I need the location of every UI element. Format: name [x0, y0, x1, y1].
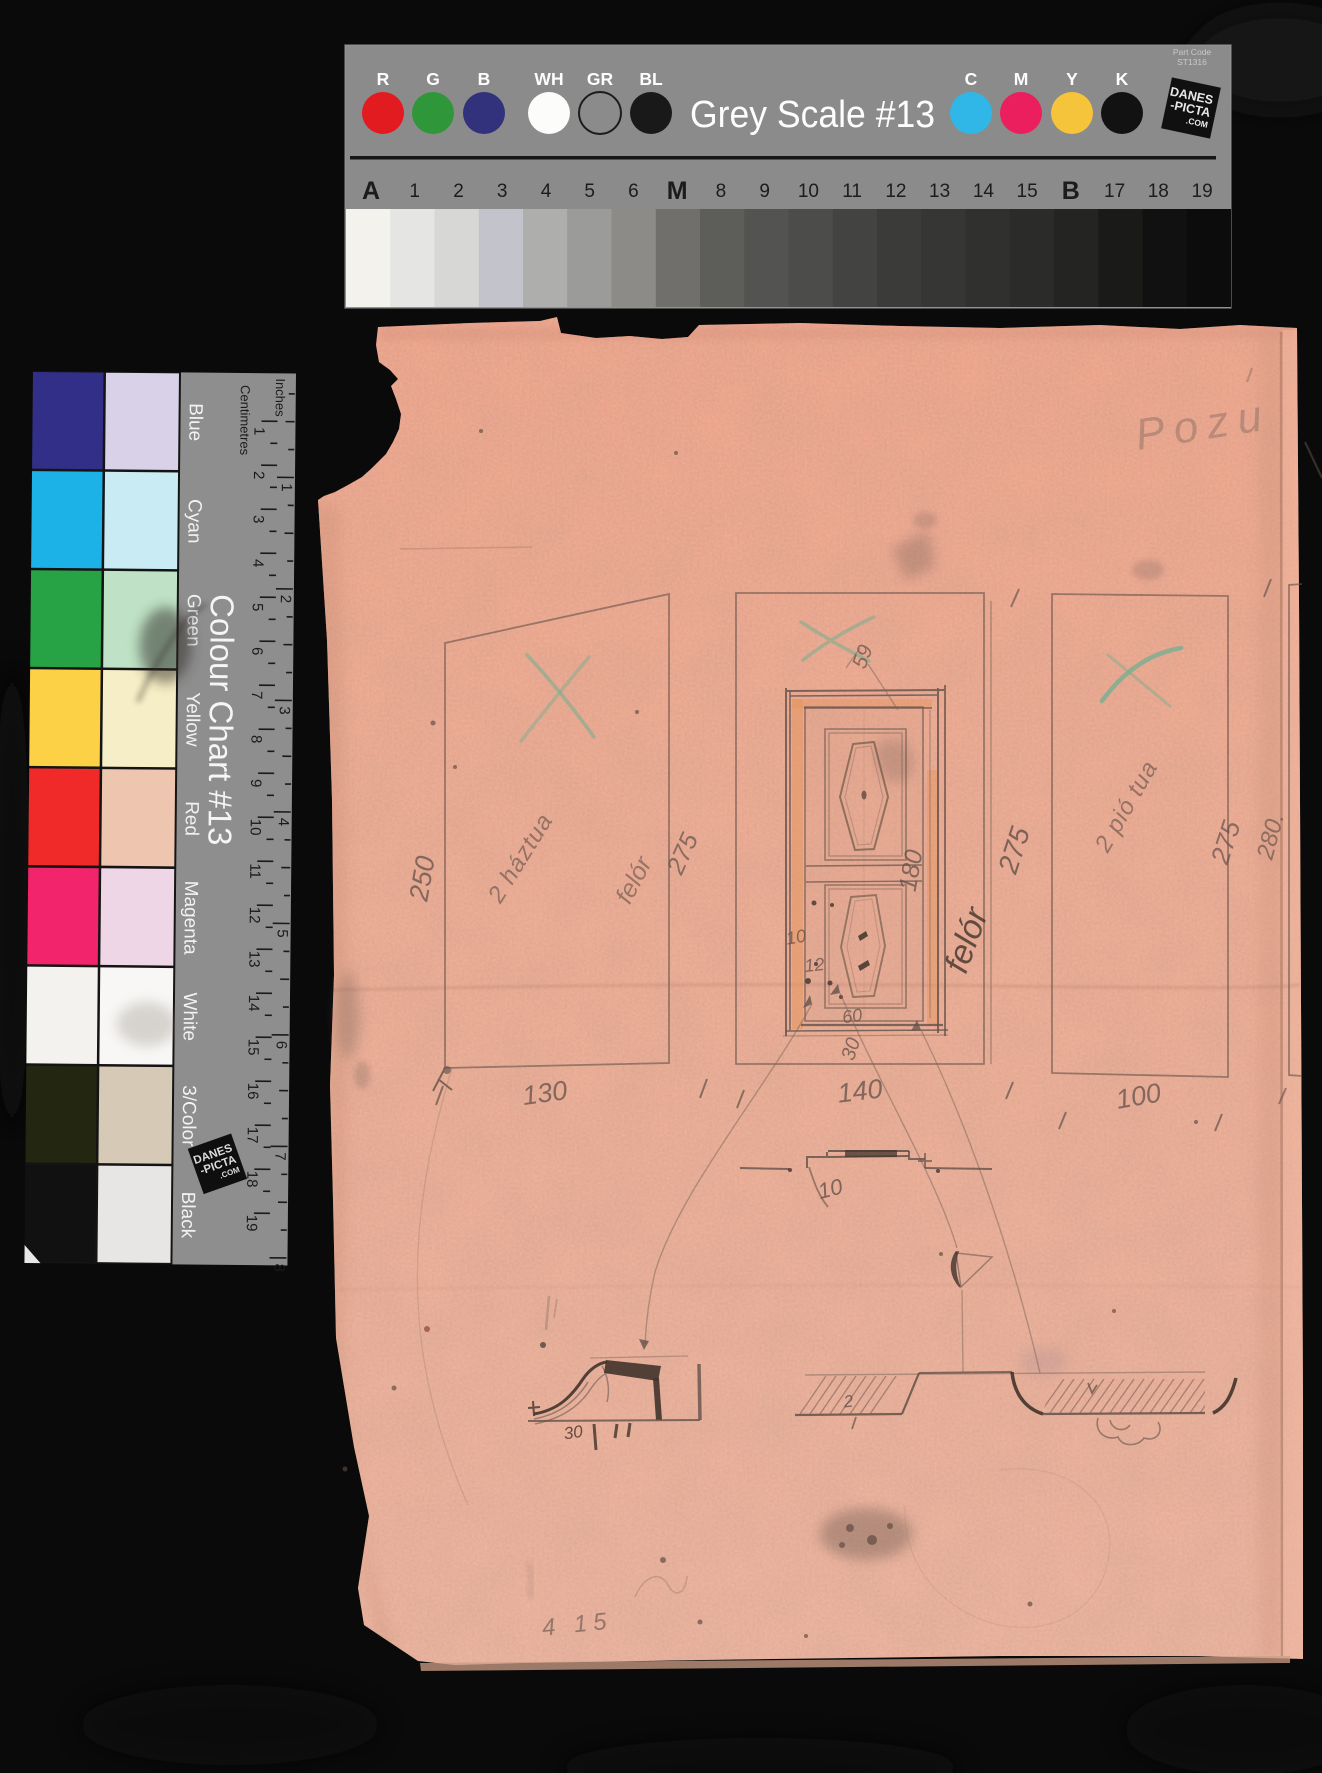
svg-text:3/Color: 3/Color: [178, 1085, 200, 1147]
svg-text:30: 30: [563, 1422, 585, 1444]
svg-text:Red: Red: [181, 801, 202, 836]
svg-text:12: 12: [885, 181, 906, 202]
svg-text:7: 7: [248, 691, 265, 700]
svg-text:13: 13: [929, 181, 950, 202]
svg-text:16: 16: [244, 1083, 261, 1100]
svg-text:8: 8: [270, 1264, 287, 1273]
svg-text:Centimetres: Centimetres: [237, 385, 253, 456]
svg-text:17: 17: [1104, 181, 1125, 202]
svg-text:11: 11: [842, 181, 862, 202]
svg-text:Grey Scale #13: Grey Scale #13: [690, 94, 935, 136]
svg-text:C: C: [965, 69, 978, 89]
svg-text:G: G: [426, 69, 440, 89]
svg-text:M: M: [667, 177, 688, 205]
svg-text:10: 10: [247, 819, 264, 836]
svg-text:12: 12: [803, 954, 825, 976]
svg-text:17: 17: [244, 1127, 261, 1144]
svg-text:6: 6: [248, 647, 265, 656]
svg-text:2: 2: [453, 181, 464, 202]
svg-text:14: 14: [245, 995, 262, 1012]
svg-text:9: 9: [247, 779, 264, 788]
svg-text:3: 3: [250, 515, 267, 524]
svg-text:2: 2: [277, 595, 294, 604]
svg-text:6: 6: [273, 1041, 290, 1050]
svg-text:ST1316: ST1316: [1177, 57, 1207, 67]
svg-text:Cyan: Cyan: [183, 499, 204, 544]
svg-text:Inches: Inches: [273, 378, 288, 417]
svg-text:8: 8: [247, 735, 264, 744]
svg-text:A: A: [362, 177, 380, 205]
svg-text:1: 1: [278, 483, 295, 492]
svg-text:GR: GR: [587, 69, 614, 89]
svg-text:8: 8: [716, 181, 727, 202]
svg-text:15: 15: [244, 1039, 261, 1056]
svg-text:4: 4: [275, 818, 292, 827]
svg-text:5: 5: [584, 181, 595, 202]
svg-text:WH: WH: [534, 69, 563, 89]
svg-text:1: 1: [409, 181, 420, 202]
svg-text:15: 15: [1017, 181, 1038, 202]
svg-text:1: 1: [250, 427, 267, 436]
svg-text:R: R: [377, 69, 390, 89]
svg-text:10: 10: [798, 181, 819, 202]
svg-text:5: 5: [274, 929, 291, 938]
svg-text:12: 12: [246, 907, 263, 924]
svg-text:60: 60: [841, 1005, 864, 1028]
svg-text:6: 6: [628, 181, 639, 202]
svg-text:White: White: [179, 992, 200, 1041]
svg-text:140: 140: [836, 1073, 884, 1108]
svg-text:3: 3: [497, 181, 508, 202]
svg-text:19: 19: [243, 1215, 260, 1232]
svg-text:4: 4: [249, 559, 266, 568]
svg-text:K: K: [1116, 69, 1129, 89]
svg-text:B: B: [478, 69, 491, 89]
svg-text:10: 10: [784, 926, 807, 949]
svg-text:5: 5: [249, 603, 266, 612]
svg-text:3: 3: [276, 706, 293, 715]
svg-text:2: 2: [250, 471, 267, 480]
svg-text:14: 14: [973, 181, 995, 202]
svg-text:BL: BL: [639, 69, 663, 89]
svg-text:4: 4: [541, 181, 552, 202]
svg-text:Y: Y: [1066, 69, 1078, 89]
svg-text:Blue: Blue: [184, 403, 205, 441]
svg-text:Colour Chart #13: Colour Chart #13: [201, 594, 240, 846]
svg-text:13: 13: [245, 951, 262, 968]
svg-text:11: 11: [246, 863, 263, 879]
svg-text:18: 18: [1148, 181, 1169, 202]
svg-text:130: 130: [520, 1075, 569, 1111]
svg-text:Yellow: Yellow: [181, 692, 203, 747]
svg-text:Black: Black: [177, 1192, 198, 1239]
svg-text:19: 19: [1192, 181, 1213, 202]
svg-text:9: 9: [759, 181, 770, 202]
svg-text:Magenta: Magenta: [179, 881, 201, 956]
svg-text:B: B: [1062, 177, 1080, 205]
svg-text:Part Code: Part Code: [1173, 47, 1212, 57]
svg-text:7: 7: [271, 1152, 288, 1161]
svg-text:M: M: [1014, 69, 1029, 89]
